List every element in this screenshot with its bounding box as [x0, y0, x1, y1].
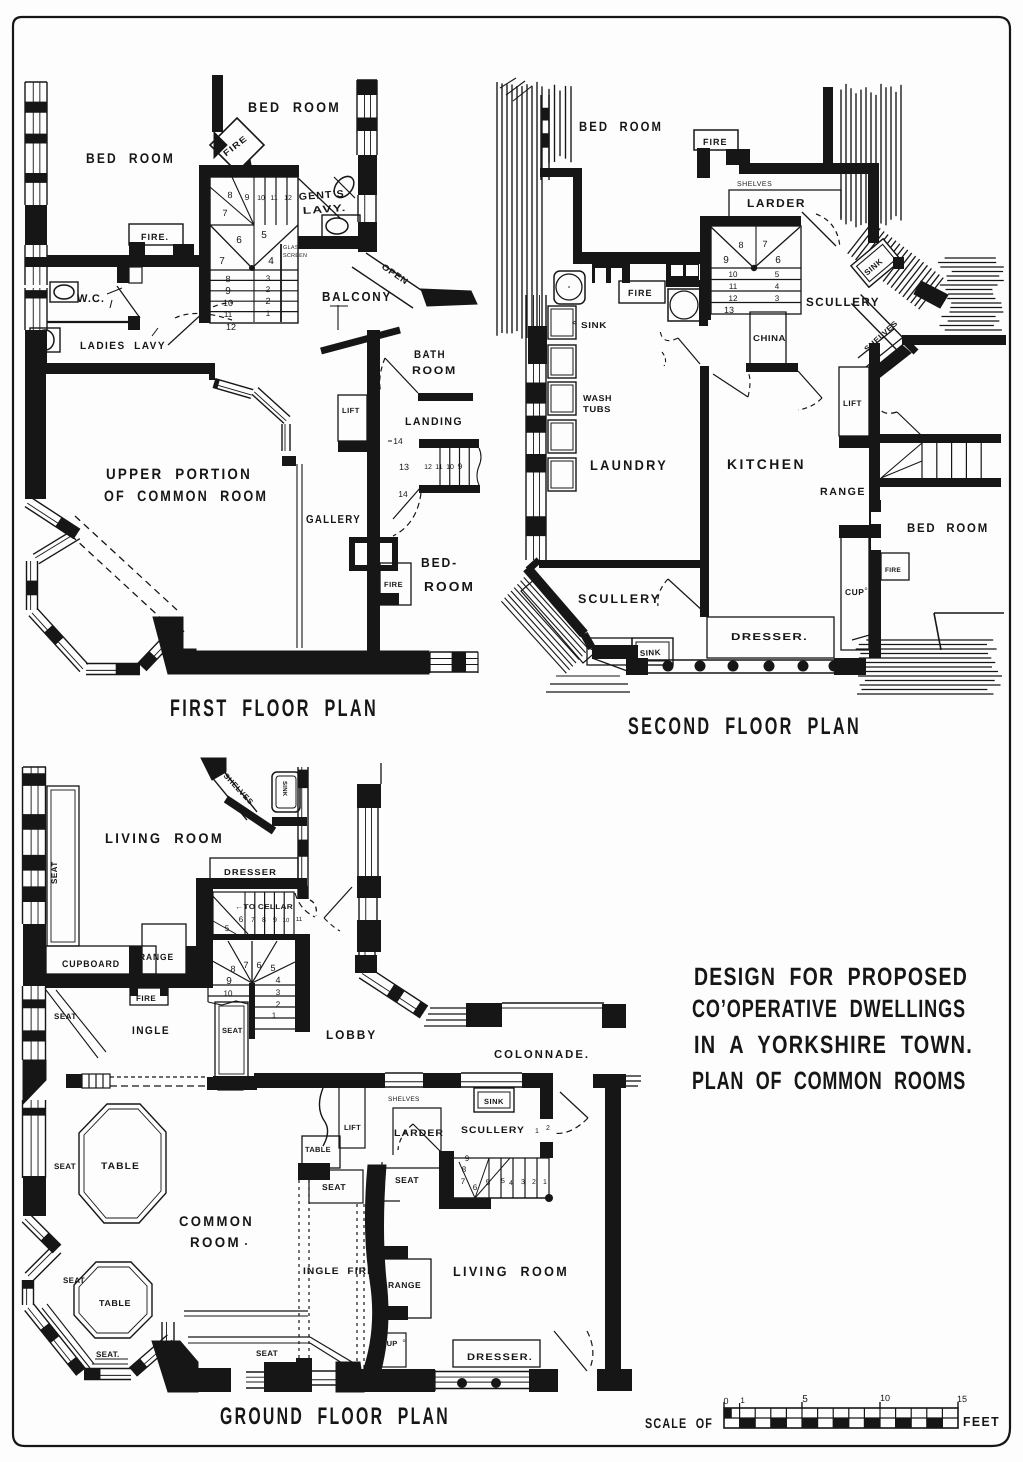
- svg-text:12: 12: [424, 464, 432, 471]
- svg-text:TO: TO: [447, 1158, 453, 1165]
- svg-text:5: 5: [261, 230, 267, 241]
- svg-text:SHELVES: SHELVES: [737, 181, 772, 188]
- svg-text:8: 8: [227, 190, 232, 200]
- svg-text:14: 14: [393, 436, 403, 446]
- svg-text:SEAT: SEAT: [63, 1276, 85, 1285]
- svg-text:TABLE: TABLE: [99, 1298, 131, 1308]
- svg-text:12: 12: [226, 322, 236, 332]
- svg-text:BED ROOM: BED ROOM: [86, 150, 175, 166]
- svg-text:3: 3: [775, 294, 780, 303]
- svg-text:7: 7: [222, 208, 227, 218]
- svg-text:10: 10: [224, 989, 233, 998]
- svg-text:FIRE: FIRE: [885, 567, 901, 574]
- svg-text:o: o: [865, 586, 868, 592]
- svg-text:SEAT: SEAT: [395, 1175, 419, 1185]
- svg-text:LIVING ROOM: LIVING ROOM: [105, 830, 224, 846]
- svg-text:6: 6: [473, 1183, 478, 1192]
- svg-text:GALLERY: GALLERY: [306, 514, 361, 526]
- svg-text:DRESSER.: DRESSER.: [731, 632, 808, 643]
- svg-text:11: 11: [270, 195, 277, 202]
- svg-text:SINK: SINK: [484, 1097, 504, 1106]
- svg-text:TABLE: TABLE: [305, 1145, 331, 1154]
- svg-text:6: 6: [239, 915, 244, 924]
- svg-text:BED ROOM: BED ROOM: [907, 521, 989, 535]
- svg-text:13: 13: [399, 462, 409, 472]
- svg-text:15: 15: [957, 1394, 967, 1404]
- svg-text:SEAT: SEAT: [222, 1026, 243, 1035]
- svg-text:BED ROOM: BED ROOM: [579, 119, 663, 134]
- svg-text:7: 7: [243, 960, 248, 970]
- svg-text:12: 12: [729, 294, 738, 303]
- svg-text:4: 4: [275, 975, 280, 985]
- svg-text:LAUNDRY: LAUNDRY: [590, 457, 668, 473]
- svg-text:FIRE: FIRE: [136, 994, 156, 1003]
- svg-text:8: 8: [262, 917, 266, 924]
- svg-text:SINK: SINK: [281, 781, 288, 797]
- svg-text:BED ROOM: BED ROOM: [248, 99, 341, 115]
- svg-text:7: 7: [251, 917, 255, 924]
- svg-text:5: 5: [225, 924, 230, 933]
- svg-text:LANDING: LANDING: [405, 416, 463, 428]
- svg-text:6: 6: [236, 235, 242, 246]
- svg-text:3: 3: [521, 1179, 525, 1186]
- svg-text:9: 9: [226, 976, 232, 987]
- svg-text:FEET: FEET: [963, 1414, 1000, 1429]
- svg-text:10: 10: [446, 464, 454, 471]
- svg-text:RANGE: RANGE: [139, 952, 174, 962]
- svg-text:PLAN OF COMMON ROOMS: PLAN OF COMMON ROOMS: [692, 1067, 966, 1095]
- svg-text:FIRE.: FIRE.: [141, 232, 169, 242]
- svg-text:DRESSER.: DRESSER.: [467, 1352, 533, 1363]
- svg-text:ROOM: ROOM: [190, 1234, 241, 1250]
- svg-text:12: 12: [284, 195, 292, 202]
- svg-text:11: 11: [224, 310, 233, 319]
- svg-text:SCULLERY: SCULLERY: [461, 1125, 525, 1136]
- svg-text:LIFT: LIFT: [342, 406, 360, 415]
- svg-text:UPPER PORTION: UPPER PORTION: [106, 466, 252, 483]
- svg-text:TUBS: TUBS: [583, 404, 611, 414]
- svg-text:o: o: [403, 1338, 406, 1344]
- svg-text:2: 2: [265, 296, 270, 306]
- svg-text:WASH: WASH: [583, 393, 612, 403]
- svg-text:CELLAR: CELLAR: [447, 1168, 453, 1188]
- svg-text:2: 2: [266, 285, 271, 294]
- svg-text:BATH: BATH: [414, 349, 446, 361]
- svg-text:10: 10: [729, 270, 738, 279]
- svg-text:OF COMMON ROOM: OF COMMON ROOM: [104, 488, 268, 505]
- svg-text:CHINA: CHINA: [753, 333, 786, 343]
- svg-text:9: 9: [458, 462, 463, 471]
- svg-text:5: 5: [802, 1394, 808, 1405]
- svg-text:6: 6: [775, 255, 781, 266]
- svg-text:LIVING ROOM: LIVING ROOM: [453, 1264, 569, 1279]
- svg-text:10: 10: [283, 917, 290, 924]
- svg-text:5: 5: [775, 270, 780, 279]
- svg-text:9: 9: [245, 192, 250, 202]
- svg-text:8: 8: [225, 274, 230, 284]
- svg-text:SINK: SINK: [581, 320, 607, 330]
- svg-text:W.C.: W.C.: [77, 293, 105, 305]
- svg-text:SCREEN: SCREEN: [283, 253, 307, 259]
- svg-text:SECOND FLOOR PLAN: SECOND FLOOR PLAN: [628, 713, 861, 740]
- svg-text:FIRE: FIRE: [384, 580, 403, 589]
- svg-text:10: 10: [880, 1393, 890, 1403]
- svg-text:SEAT: SEAT: [50, 861, 59, 884]
- svg-text:ROOM: ROOM: [412, 365, 457, 377]
- svg-text:10: 10: [257, 195, 265, 202]
- svg-text:8: 8: [230, 964, 235, 974]
- svg-text:8: 8: [738, 240, 743, 250]
- svg-text:11: 11: [729, 282, 738, 291]
- svg-text:DESIGN FOR PROPOSED: DESIGN FOR PROPOSED: [694, 963, 968, 991]
- svg-text:9: 9: [465, 1154, 470, 1163]
- svg-text:RANGE: RANGE: [820, 486, 866, 498]
- svg-text:9: 9: [273, 917, 277, 924]
- svg-text:SEAT: SEAT: [256, 1349, 278, 1358]
- svg-text:DRESSER: DRESSER: [224, 867, 277, 877]
- svg-text:1: 1: [543, 1179, 547, 1186]
- svg-text:2: 2: [532, 1179, 536, 1186]
- svg-text:4: 4: [509, 1180, 513, 1187]
- svg-text:SHELVES: SHELVES: [862, 319, 899, 354]
- svg-text:13: 13: [724, 305, 734, 315]
- svg-text:4: 4: [775, 282, 780, 291]
- svg-text:FIRST FLOOR PLAN: FIRST FLOOR PLAN: [170, 695, 378, 722]
- svg-text:INGLE: INGLE: [132, 1025, 170, 1037]
- svg-text:SHELVES: SHELVES: [388, 1096, 420, 1103]
- svg-text:RANGE: RANGE: [388, 1280, 421, 1290]
- svg-text:6: 6: [256, 960, 261, 970]
- svg-text:9: 9: [723, 255, 729, 266]
- svg-text:1: 1: [740, 1396, 745, 1405]
- svg-text:11: 11: [296, 916, 303, 923]
- svg-text:SEAT.: SEAT.: [96, 1350, 120, 1359]
- svg-text:LADIES LAVY: LADIES LAVY: [80, 340, 166, 352]
- svg-text:CUP: CUP: [845, 587, 864, 597]
- svg-text:CUP: CUP: [381, 1339, 397, 1348]
- svg-text:OPEN: OPEN: [380, 261, 410, 286]
- svg-text:SCULLERY: SCULLERY: [578, 592, 661, 606]
- svg-text:IN A YORKSHIRE TOWN.: IN A YORKSHIRE TOWN.: [694, 1031, 973, 1059]
- svg-text:7: 7: [461, 1177, 466, 1186]
- svg-text:FIRE: FIRE: [703, 137, 728, 147]
- svg-text:KITCHEN: KITCHEN: [727, 456, 806, 472]
- svg-text:5: 5: [270, 963, 275, 973]
- svg-text:CUPBOARD: CUPBOARD: [62, 959, 120, 970]
- svg-text:LIFT: LIFT: [843, 399, 862, 408]
- svg-text:1: 1: [272, 1011, 277, 1020]
- svg-text:7: 7: [762, 239, 767, 249]
- svg-text:5: 5: [486, 1178, 491, 1187]
- svg-text:2: 2: [276, 1000, 281, 1009]
- svg-text:3: 3: [266, 274, 271, 283]
- svg-text:TABLE: TABLE: [101, 1161, 140, 1172]
- svg-text:14: 14: [398, 489, 408, 499]
- svg-text:1: 1: [535, 1128, 539, 1135]
- svg-text:0: 0: [723, 1396, 728, 1406]
- svg-text:SCALE OF: SCALE OF: [645, 1415, 713, 1431]
- svg-text:8: 8: [462, 1165, 467, 1174]
- svg-text:LIFT: LIFT: [344, 1123, 361, 1132]
- svg-text:BED-: BED-: [421, 555, 458, 570]
- svg-text:SEAT: SEAT: [54, 1012, 77, 1021]
- svg-text:COMMON: COMMON: [179, 1213, 254, 1229]
- svg-text:ROOM: ROOM: [424, 579, 475, 594]
- svg-text:GROUND FLOOR PLAN: GROUND FLOOR PLAN: [220, 1403, 450, 1430]
- svg-text:COLONNADE.: COLONNADE.: [494, 1049, 590, 1061]
- svg-text:7: 7: [219, 256, 225, 267]
- svg-text:11: 11: [435, 464, 442, 471]
- svg-text:BALCONY: BALCONY: [322, 289, 392, 304]
- svg-text:INGLE FIRE: INGLE FIRE: [303, 1266, 375, 1277]
- svg-text:3: 3: [276, 988, 281, 997]
- svg-text:SEAT: SEAT: [322, 1182, 346, 1192]
- svg-text:2: 2: [546, 1125, 550, 1132]
- svg-text:1: 1: [266, 309, 271, 318]
- svg-text:5: 5: [501, 1178, 505, 1185]
- svg-text:4: 4: [268, 256, 274, 267]
- svg-text:COʼOPERATIVE DWELLINGS: COʼOPERATIVE DWELLINGS: [692, 995, 966, 1023]
- svg-text:9: 9: [225, 286, 231, 297]
- svg-text:SEAT: SEAT: [54, 1162, 76, 1171]
- svg-text:FIRE: FIRE: [628, 288, 653, 298]
- svg-text:SINK: SINK: [640, 648, 662, 658]
- svg-text:←TO CELLAR: ←TO CELLAR: [235, 904, 293, 911]
- svg-text:LARDER: LARDER: [747, 198, 806, 210]
- svg-text:LOBBY: LOBBY: [326, 1028, 377, 1042]
